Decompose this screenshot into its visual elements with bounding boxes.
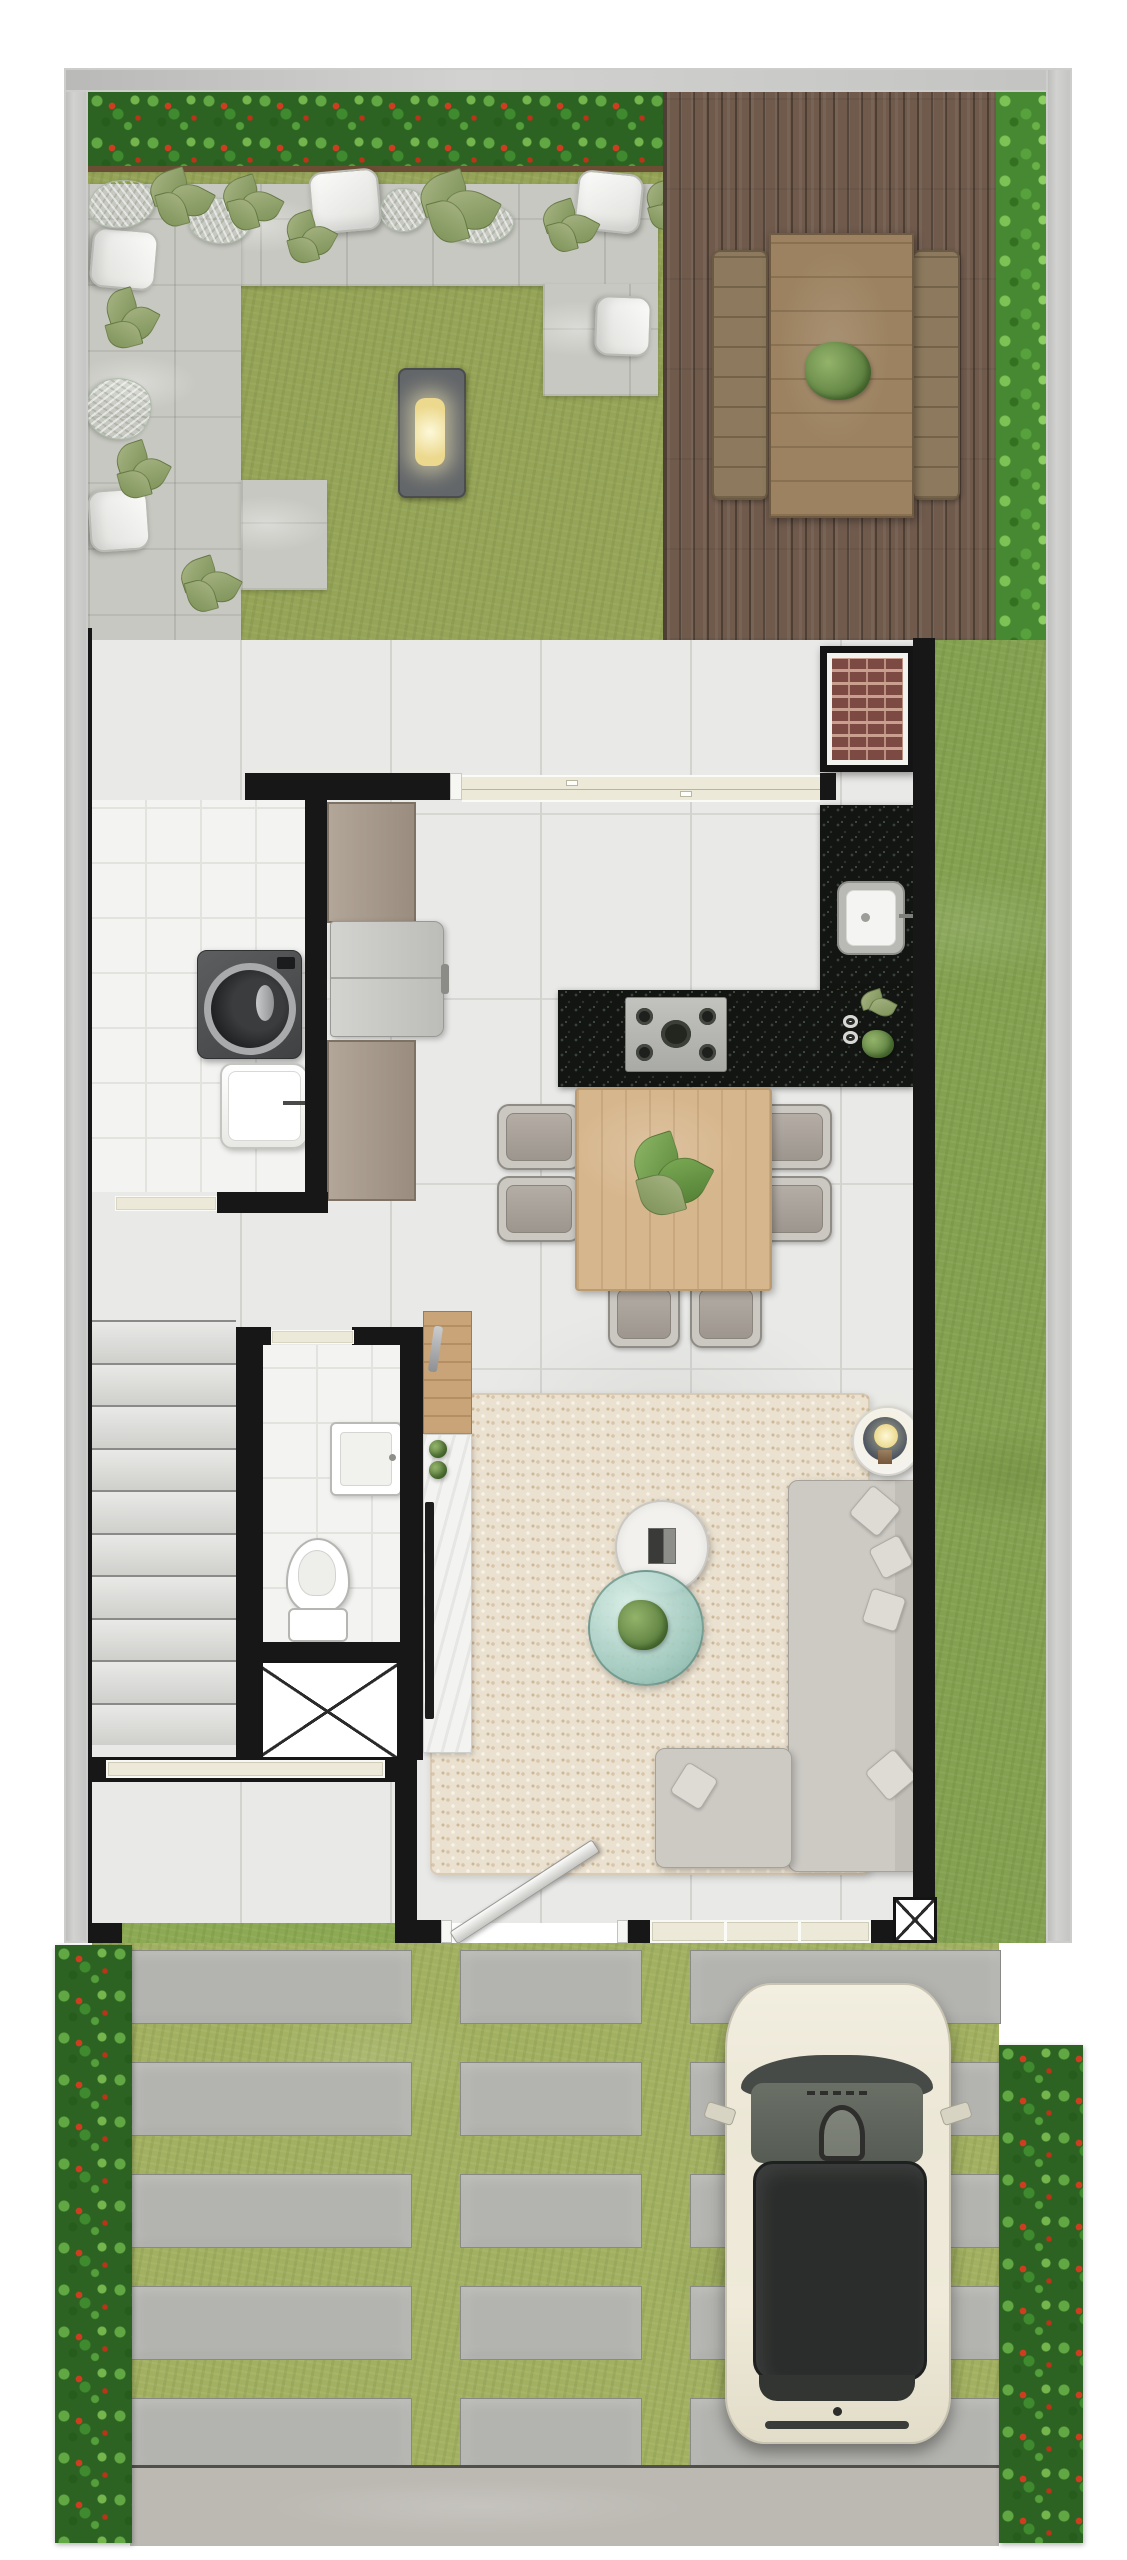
elevator-shaft [252,1660,403,1763]
front-window [650,1920,871,1943]
side-lawn-strip [935,640,1046,1943]
utility-box [893,1897,937,1943]
boundary-frame-left [64,68,88,1943]
barbecue-grill [820,646,915,772]
counter-dish [843,1015,858,1028]
bathroom-door-opening [271,1330,354,1344]
wall-front-2 [628,1920,650,1943]
stair-tread [92,1448,236,1491]
driveway-paver [130,2398,412,2472]
stair-tread [92,1490,236,1533]
stair-tread [92,1405,236,1448]
deck-table-plant [805,342,871,400]
console-bowl [429,1440,447,1458]
boundary-frame-right [1046,68,1072,1943]
garden-plant [220,174,282,230]
sink-drain [861,913,870,922]
fridge-divider [331,977,443,979]
garden-plant [178,554,240,612]
driveway-paver [460,1950,642,2024]
wall-stair-side [236,1327,263,1758]
lamp-glow [874,1424,898,1448]
parked-car [725,1983,951,2444]
tv [425,1502,434,1719]
stair-tread [92,1533,236,1576]
wall-terrace [245,773,450,800]
driveway-hedge-right [999,2045,1083,2543]
car-rear-glass [759,2375,915,2401]
garden-plant [104,284,156,354]
wall-front-1 [395,1920,441,1943]
driveway-paver [460,2398,642,2472]
deck-side-hedge [996,92,1046,640]
sidewalk [130,2465,999,2546]
car-cabin-glass [751,2083,923,2163]
wood-deck [663,92,1012,640]
cooktop [625,997,727,1072]
driveway-paver [130,2062,412,2136]
stair-tread [92,1575,236,1618]
garden-plant [416,168,500,242]
sink-basin [846,890,896,946]
wall-end-cap [450,773,462,800]
lamp-side-table [852,1406,922,1476]
sofa-chaise [655,1748,792,1868]
lounge-pad [594,295,652,357]
lounge-pad [89,226,160,292]
door-jamb [617,1920,628,1943]
basin [340,1432,392,1486]
wall-laundry-south [217,1192,328,1213]
washing-machine [197,950,302,1059]
tv-console-shelf [423,1311,472,1436]
fridge-handle [441,964,449,994]
driveway-paver [130,2286,412,2360]
glass-table-plant [618,1600,668,1650]
deck-bench [712,250,768,500]
stair-tread [92,1660,236,1703]
garden-plant [114,438,168,502]
ground-light [398,368,466,498]
wall-laundry-kitchen [305,800,327,1195]
toilet-tank [288,1608,348,1642]
washer-door [204,963,296,1055]
driveway-paver [122,1950,412,2024]
garden-plant [284,208,334,266]
garden-plant [540,198,598,252]
stair-tread [92,1703,236,1746]
car-antenna [833,2407,842,2416]
wall-right [913,638,935,1943]
service-door-opening [115,1196,217,1211]
cabinet-upper [327,802,416,923]
wall-bath-east [400,1327,423,1658]
dining-chair [497,1104,581,1170]
car-roof-glass [753,2161,927,2381]
refrigerator [330,921,444,1037]
driveway-paver [460,2286,642,2360]
car-rear-trim [765,2421,909,2429]
bathroom-sink [330,1422,402,1496]
car-logo [819,2105,865,2161]
lamp-book [878,1450,892,1464]
driveway-paver [130,2174,412,2248]
south-window [106,1760,385,1778]
grill-bricks [832,658,903,760]
kitchen-sink [837,881,905,955]
washer-panel [277,957,295,969]
stair-tread [92,1320,236,1363]
wall-shaft-east [397,1642,423,1760]
coffee-table-books [648,1528,676,1564]
tub-basin [228,1071,301,1141]
counter-plant [862,1030,894,1058]
boundary-frame-top [64,68,1072,92]
cabinet-lower [327,1040,416,1201]
toilet-seat [298,1550,336,1596]
driveway-paver [460,2062,642,2136]
wall-bath-top-left [236,1327,271,1345]
light-glow [415,398,445,466]
floor-plan [0,0,1127,2560]
driveway-hedge-left [55,1945,132,2543]
dining-chair [497,1176,581,1242]
driveway-paver [460,2174,642,2248]
sliding-glass-door [462,775,820,802]
stair-tread [92,1363,236,1406]
console-bowl [429,1461,447,1479]
counter-plant [858,988,896,1020]
laundry-sink [220,1063,309,1149]
wall-living-west [395,1757,417,1943]
wall-glass-stub [820,773,836,800]
backyard-lawn [88,92,1046,640]
counter-dish [843,1031,858,1044]
garden-plant [146,166,214,226]
dining-table-plant [630,1128,710,1222]
deck-bench [912,250,960,500]
patio-foot [241,480,327,590]
washer-door-handle [256,985,274,1021]
wall-bath-south [236,1642,423,1660]
basin-faucet [389,1454,396,1461]
sofa-main [788,1480,922,1872]
toilet [282,1538,350,1640]
stair-tread [92,1618,236,1661]
tub-faucet [283,1101,305,1105]
staircase [92,1320,236,1745]
backyard-hedge [88,92,663,168]
